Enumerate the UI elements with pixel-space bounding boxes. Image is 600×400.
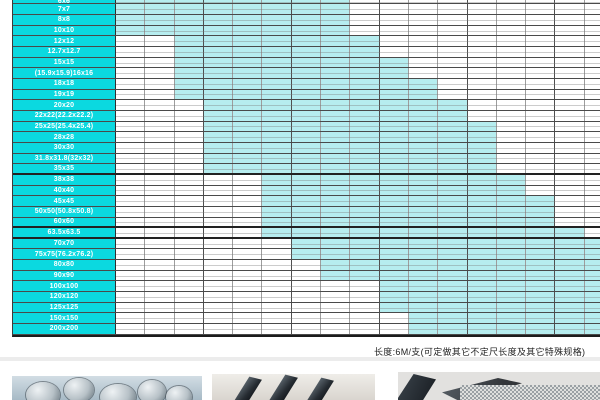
availability-cells [116, 15, 600, 25]
grid-cell [555, 4, 584, 14]
grid-cell [380, 4, 409, 14]
grid-cell [409, 260, 438, 270]
grid-cell [409, 68, 438, 78]
availability-cells [116, 90, 600, 100]
grid-cell [145, 313, 174, 323]
grid-cell [175, 239, 204, 249]
grid-cell [204, 228, 233, 237]
grid-cell [585, 228, 600, 237]
grid-cell [262, 58, 291, 68]
grid-cell [555, 164, 584, 173]
grid-cell [497, 154, 526, 164]
grid-cell [555, 239, 584, 249]
grid-cell [175, 100, 204, 110]
grid-cell [526, 281, 555, 291]
grid-cell [497, 249, 526, 259]
grid-cell [380, 164, 409, 173]
size-label: 12x12 [13, 36, 116, 46]
size-label: 45x45 [13, 196, 116, 206]
grid-cell [350, 122, 379, 132]
grid-cell [175, 228, 204, 237]
grid-cell [292, 164, 321, 173]
grid-cell [409, 132, 438, 142]
grid-cell [585, 218, 600, 227]
grid-cell [350, 324, 379, 334]
grid-cell [321, 15, 350, 25]
grid-cell [468, 132, 497, 142]
grid-cell [204, 143, 233, 153]
grid-cell [204, 68, 233, 78]
grid-cell [585, 292, 600, 302]
grid-cell [321, 143, 350, 153]
availability-cells [116, 249, 600, 259]
table-row: 150x150 [13, 313, 600, 324]
grid-cell [497, 47, 526, 57]
grid-cell [204, 313, 233, 323]
grid-cell [555, 313, 584, 323]
grid-cell [262, 90, 291, 100]
grid-cell [175, 122, 204, 132]
grid-cell [585, 122, 600, 132]
grid-cell [262, 0, 291, 3]
grid-cell [145, 122, 174, 132]
grid-cell [468, 164, 497, 173]
grid-cell [321, 324, 350, 334]
grid-cell [380, 175, 409, 185]
grid-cell [262, 36, 291, 46]
grid-cell [233, 0, 262, 3]
grid-cell [526, 15, 555, 25]
grid-cell [321, 68, 350, 78]
grid-cell [585, 186, 600, 196]
grid-cell [116, 0, 145, 3]
table-row: 19x19 [13, 90, 600, 101]
table-row: (15.9x15.9)16x16 [13, 68, 600, 79]
availability-cells [116, 154, 600, 164]
grid-cell [409, 239, 438, 249]
grid-cell [292, 196, 321, 206]
grid-cell [380, 100, 409, 110]
grid-cell [321, 228, 350, 237]
grid-cell [497, 281, 526, 291]
grid-cell [175, 175, 204, 185]
grid-cell [175, 68, 204, 78]
grid-cell [262, 313, 291, 323]
grid-cell [409, 26, 438, 36]
grid-cell [175, 0, 204, 3]
grid-cell [321, 186, 350, 196]
grid-cell [321, 47, 350, 57]
grid-cell [380, 186, 409, 196]
grid-cell [409, 111, 438, 121]
grid-cell [321, 303, 350, 313]
size-availability-table: 6x6 7x7 8x8 10x10 12x12 12.7x12.7 15x15 [12, 0, 600, 337]
grid-cell [350, 143, 379, 153]
table-row: 50x50(50.8x50.8) [13, 207, 600, 218]
grid-cell [409, 324, 438, 334]
grid-cell [262, 26, 291, 36]
grid-cell [497, 79, 526, 89]
grid-cell [292, 175, 321, 185]
round-bar-shape [138, 380, 166, 400]
grid-cell [262, 164, 291, 173]
round-bar-shape [100, 384, 136, 400]
grid-cell [262, 68, 291, 78]
grid-cell [116, 292, 145, 302]
grid-cell [145, 132, 174, 142]
grid-cell [468, 260, 497, 270]
availability-cells [116, 0, 600, 3]
availability-cells [116, 218, 600, 227]
grid-cell [233, 313, 262, 323]
grid-cell [175, 249, 204, 259]
grid-cell [145, 218, 174, 227]
grid-cell [350, 207, 379, 217]
grid-cell [585, 132, 600, 142]
grid-cell [585, 239, 600, 249]
grid-cell [380, 0, 409, 3]
round-bar-shape [166, 386, 192, 400]
grid-cell [116, 281, 145, 291]
grid-cell [145, 111, 174, 121]
grid-cell [116, 196, 145, 206]
grid-cell [555, 249, 584, 259]
grid-cell [321, 218, 350, 227]
grid-cell [292, 228, 321, 237]
grid-cell [262, 186, 291, 196]
grid-cell [585, 36, 600, 46]
grid-cell [468, 0, 497, 3]
grid-cell [380, 90, 409, 100]
grid-cell [145, 4, 174, 14]
grid-cell [555, 175, 584, 185]
grid-cell [350, 58, 379, 68]
grid-cell [116, 122, 145, 132]
grid-cell [262, 239, 291, 249]
table-row: 22x22(22.2x22.2) [13, 111, 600, 122]
grid-cell [292, 15, 321, 25]
table-row: 12x12 [13, 36, 600, 47]
grid-cell [116, 143, 145, 153]
grid-cell [233, 79, 262, 89]
grid-cell [116, 313, 145, 323]
grid-cell [233, 164, 262, 173]
grid-cell [526, 26, 555, 36]
grid-cell [585, 58, 600, 68]
grid-cell [145, 228, 174, 237]
grid-cell [233, 292, 262, 302]
availability-cells [116, 26, 600, 36]
grid-cell [468, 186, 497, 196]
grid-cell [438, 143, 467, 153]
table-row: 200x200 [13, 324, 600, 335]
grid-cell [321, 281, 350, 291]
grid-cell [204, 281, 233, 291]
grid-cell [116, 90, 145, 100]
size-label: 35x35 [13, 164, 116, 173]
grid-cell [409, 303, 438, 313]
grid-cell [497, 0, 526, 3]
square-steel-bars-photo [212, 374, 375, 400]
grid-cell [233, 15, 262, 25]
grid-cell [409, 164, 438, 173]
grid-cell [555, 186, 584, 196]
grid-cell [233, 90, 262, 100]
grid-cell [380, 207, 409, 217]
grid-cell [350, 271, 379, 281]
grid-cell [350, 239, 379, 249]
grid-cell [438, 68, 467, 78]
grid-cell [233, 281, 262, 291]
grid-cell [526, 36, 555, 46]
grid-cell [145, 26, 174, 36]
grid-cell [175, 132, 204, 142]
grid-cell [380, 58, 409, 68]
grid-cell [321, 164, 350, 173]
grid-cell [262, 207, 291, 217]
grid-cell [585, 26, 600, 36]
grid-cell [145, 175, 174, 185]
grid-cell [526, 143, 555, 153]
grid-cell [380, 249, 409, 259]
grid-cell [468, 239, 497, 249]
table-row: 35x35 [13, 164, 600, 175]
grid-cell [468, 292, 497, 302]
grid-cell [233, 132, 262, 142]
round-bar-shape [64, 378, 94, 400]
grid-cell [468, 143, 497, 153]
table-row: 20x20 [13, 100, 600, 111]
grid-cell [292, 271, 321, 281]
grid-cell [438, 228, 467, 237]
grid-cell [262, 4, 291, 14]
grid-cell [438, 260, 467, 270]
grid-cell [380, 47, 409, 57]
grid-cell [350, 68, 379, 78]
grid-cell [497, 100, 526, 110]
grid-cell [497, 303, 526, 313]
grid-cell [438, 324, 467, 334]
size-label: 90x90 [13, 271, 116, 281]
grid-cell [233, 58, 262, 68]
grid-cell [350, 218, 379, 227]
grid-cell [292, 186, 321, 196]
grid-cell [380, 196, 409, 206]
grid-cell [497, 122, 526, 132]
grid-cell [438, 218, 467, 227]
grid-cell [526, 218, 555, 227]
grid-cell [438, 271, 467, 281]
grid-cell [145, 207, 174, 217]
grid-cell [585, 90, 600, 100]
grid-cell [468, 218, 497, 227]
grid-cell [468, 79, 497, 89]
grid-cell [204, 111, 233, 121]
grid-cell [526, 324, 555, 334]
grid-cell [175, 207, 204, 217]
grid-cell [116, 26, 145, 36]
grid-cell [204, 164, 233, 173]
size-label: 6x6 [13, 0, 116, 3]
table-row: 8x8 [13, 15, 600, 26]
grid-cell [438, 47, 467, 57]
grid-cell [262, 122, 291, 132]
grid-cell [175, 26, 204, 36]
table-row: 45x45 [13, 196, 600, 207]
grid-cell [233, 196, 262, 206]
grid-cell [350, 292, 379, 302]
page-divider [0, 357, 600, 361]
grid-cell [262, 15, 291, 25]
grid-cell [380, 313, 409, 323]
grid-cell [468, 249, 497, 259]
grid-cell [262, 249, 291, 259]
grid-cell [350, 100, 379, 110]
grid-cell [262, 303, 291, 313]
availability-cells [116, 58, 600, 68]
grid-cell [438, 313, 467, 323]
grid-cell [438, 26, 467, 36]
size-label: 7x7 [13, 4, 116, 14]
grid-cell [497, 228, 526, 237]
grid-cell [233, 4, 262, 14]
grid-cell [555, 143, 584, 153]
grid-cell [350, 196, 379, 206]
grid-cell [204, 90, 233, 100]
grid-cell [292, 249, 321, 259]
grid-cell [468, 313, 497, 323]
table-row: 10x10 [13, 26, 600, 37]
grid-cell [468, 122, 497, 132]
grid-cell [204, 175, 233, 185]
grid-cell [321, 292, 350, 302]
grid-cell [292, 207, 321, 217]
grid-cell [438, 164, 467, 173]
grid-cell [292, 26, 321, 36]
grid-cell [145, 58, 174, 68]
grid-cell [233, 249, 262, 259]
grid-cell [321, 313, 350, 323]
grid-cell [262, 218, 291, 227]
grid-cell [204, 79, 233, 89]
grid-cell [409, 228, 438, 237]
grid-cell [468, 154, 497, 164]
grid-cell [292, 90, 321, 100]
grid-cell [585, 313, 600, 323]
table-row: 15x15 [13, 58, 600, 69]
grid-cell [321, 249, 350, 259]
table-row: 30x30 [13, 143, 600, 154]
size-label: 150x150 [13, 313, 116, 323]
grid-cell [555, 207, 584, 217]
angle-steel-profiles-photo [398, 372, 600, 400]
grid-cell [233, 122, 262, 132]
grid-cell [526, 122, 555, 132]
grid-cell [585, 281, 600, 291]
grid-cell [233, 239, 262, 249]
availability-cells [116, 186, 600, 196]
grid-cell [585, 47, 600, 57]
grid-cell [116, 186, 145, 196]
size-label: 22x22(22.2x22.2) [13, 111, 116, 121]
square-bar-shape [263, 375, 298, 400]
grid-cell [497, 26, 526, 36]
table-row: 25x25(25.4x25.4) [13, 122, 600, 133]
grid-cell [526, 260, 555, 270]
grid-cell [350, 303, 379, 313]
grid-cell [145, 186, 174, 196]
grid-cell [380, 143, 409, 153]
grid-cell [350, 260, 379, 270]
grid-cell [526, 239, 555, 249]
grid-cell [555, 90, 584, 100]
grid-cell [380, 324, 409, 334]
grid-cell [145, 271, 174, 281]
grid-cell [116, 207, 145, 217]
grid-cell [555, 26, 584, 36]
grid-cell [380, 154, 409, 164]
grid-cell [380, 26, 409, 36]
grid-cell [497, 68, 526, 78]
grid-cell [438, 186, 467, 196]
grid-cell [116, 154, 145, 164]
grid-cell [409, 90, 438, 100]
grid-cell [175, 90, 204, 100]
grid-cell [555, 132, 584, 142]
grid-cell [409, 281, 438, 291]
grid-cell [262, 196, 291, 206]
grid-cell [468, 100, 497, 110]
grid-cell [468, 175, 497, 185]
grid-cell [145, 90, 174, 100]
grid-cell [175, 324, 204, 334]
grid-cell [116, 175, 145, 185]
table-row: 31.8x31.8(32x32) [13, 154, 600, 165]
grid-cell [175, 313, 204, 323]
grid-cell [321, 122, 350, 132]
grid-cell [233, 186, 262, 196]
grid-cell [204, 186, 233, 196]
grid-cell [526, 271, 555, 281]
grid-cell [438, 4, 467, 14]
size-label: 80x80 [13, 260, 116, 270]
grid-cell [438, 100, 467, 110]
grid-cell [175, 36, 204, 46]
grid-cell [409, 196, 438, 206]
grid-cell [468, 68, 497, 78]
grid-cell [204, 4, 233, 14]
grid-cell [409, 249, 438, 259]
size-label: 15x15 [13, 58, 116, 68]
availability-cells [116, 164, 600, 173]
grid-cell [438, 154, 467, 164]
grid-cell [409, 143, 438, 153]
grid-cell [321, 36, 350, 46]
grid-cell [555, 36, 584, 46]
grid-cell [526, 90, 555, 100]
grid-cell [262, 154, 291, 164]
grid-cell [438, 249, 467, 259]
grid-cell [526, 154, 555, 164]
grid-cell [204, 15, 233, 25]
size-label: 20x20 [13, 100, 116, 110]
grid-cell [204, 207, 233, 217]
grid-cell [262, 47, 291, 57]
grid-cell [468, 271, 497, 281]
grid-cell [116, 260, 145, 270]
grid-cell [468, 207, 497, 217]
grid-cell [233, 143, 262, 153]
